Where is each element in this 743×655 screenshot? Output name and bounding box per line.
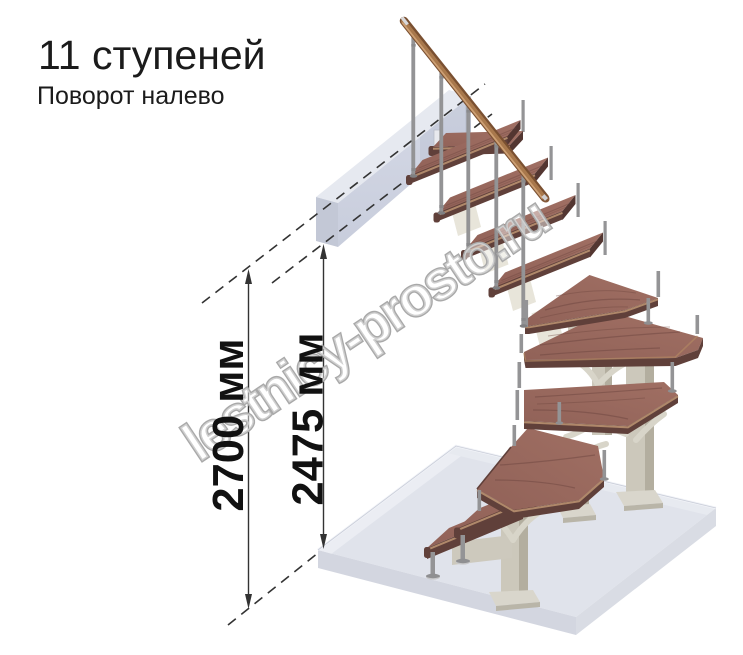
svg-text:Поворот налево: Поворот налево [37, 82, 225, 110]
svg-text:11 ступеней: 11 ступеней [38, 32, 266, 78]
svg-text:2700 мм: 2700 мм [205, 338, 253, 511]
svg-text:2475 мм: 2475 мм [285, 332, 333, 505]
